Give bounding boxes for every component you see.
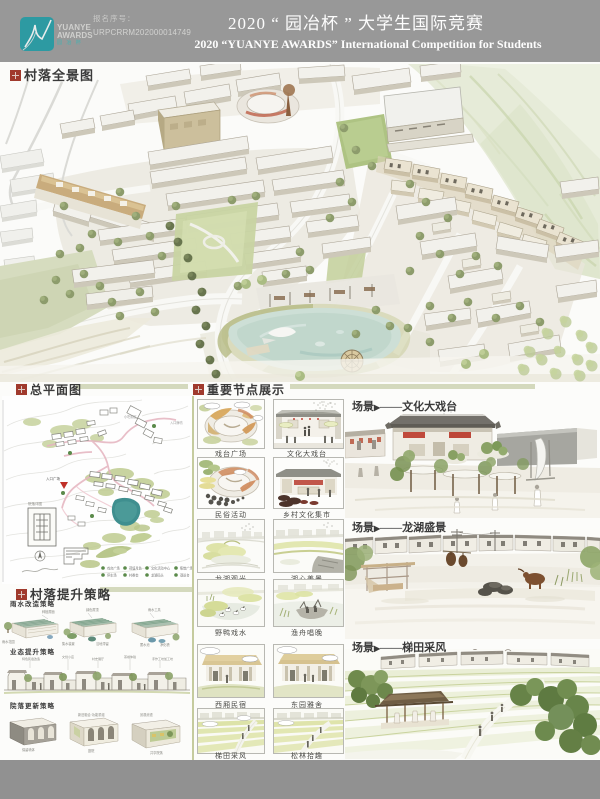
svg-text:景观渗透: 景观渗透 <box>140 712 154 717</box>
svg-text:观景台: 观景台 <box>180 573 190 578</box>
svg-text:特色民宿改造: 特色民宿改造 <box>22 656 40 661</box>
svg-text:文化活动中心: 文化活动中心 <box>151 566 171 571</box>
svg-text:集散广场: 集散广场 <box>180 566 192 571</box>
svg-text:龙湖码头: 龙湖码头 <box>151 573 165 578</box>
svg-text:戏台广场: 戏台广场 <box>107 566 120 571</box>
svg-text:入口牌坊: 入口牌坊 <box>170 420 184 425</box>
svg-text:茶咖体验: 茶咖体验 <box>124 654 136 659</box>
svg-text:共享院落: 共享院落 <box>150 750 164 755</box>
svg-text:集水装置: 集水装置 <box>62 641 75 646</box>
svg-text:蓄水池: 蓄水池 <box>140 642 150 647</box>
svg-text:院落详图: 院落详图 <box>28 501 42 506</box>
svg-text:小吃街区: 小吃街区 <box>124 414 138 419</box>
svg-text:停车场: 停车场 <box>107 573 117 578</box>
svg-text:雨水花园: 雨水花园 <box>2 639 15 644</box>
svg-text:绿色屋顶: 绿色屋顶 <box>86 607 100 612</box>
svg-text:庭院: 庭院 <box>88 748 95 753</box>
svg-text:雨水工具: 雨水工具 <box>148 607 162 612</box>
svg-text:种植屋面: 种植屋面 <box>42 609 55 614</box>
svg-text:业态提升策略: 业态提升策略 <box>10 647 55 656</box>
svg-text:保留墙体: 保留墙体 <box>22 747 36 752</box>
svg-text:入口广场: 入口广场 <box>46 476 60 481</box>
svg-text:文创小店: 文创小店 <box>62 654 74 659</box>
svg-text:洼地滞留: 洼地滞留 <box>96 641 109 646</box>
svg-text:院落更新策略: 院落更新策略 <box>10 701 55 710</box>
svg-text:新旧融合·功能重组: 新旧融合·功能重组 <box>78 712 105 717</box>
svg-text:荷塘月色: 荷塘月色 <box>129 566 143 571</box>
svg-text:村委会: 村委会 <box>129 573 139 578</box>
svg-text:净化槽: 净化槽 <box>160 642 170 647</box>
svg-text:手作工坊加工坊: 手作工坊加工坊 <box>152 656 173 661</box>
svg-text:村史展厅: 村史展厅 <box>92 656 104 661</box>
